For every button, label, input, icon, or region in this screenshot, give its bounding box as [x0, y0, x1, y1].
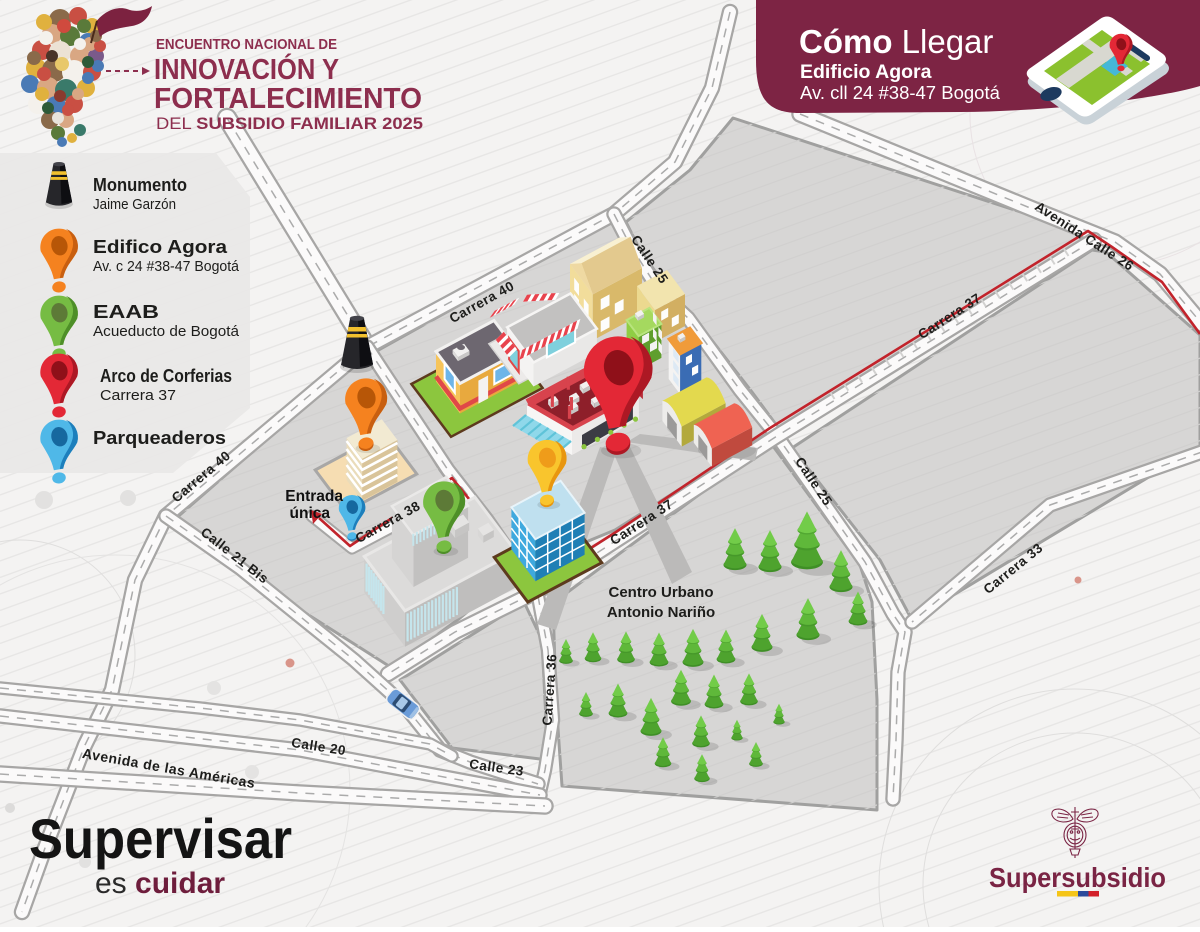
svg-text:Monumento: Monumento	[93, 175, 187, 195]
svg-text:Cómo Llegar: Cómo Llegar	[799, 23, 993, 60]
svg-text:Entrada: Entrada	[285, 488, 343, 505]
svg-text:Edificio Agora: Edificio Agora	[800, 61, 932, 83]
svg-text:INNOVACIÓN Y: INNOVACIÓN Y	[154, 52, 339, 86]
svg-text:FORTALECIMIENTO: FORTALECIMIENTO	[154, 83, 422, 115]
svg-text:Antonio Nariño: Antonio Nariño	[607, 604, 715, 621]
svg-text:Supervisar: Supervisar	[29, 807, 292, 870]
svg-text:Parqueaderos: Parqueaderos	[93, 428, 226, 448]
svg-text:es cuidar: es cuidar	[95, 867, 225, 900]
svg-text:Av. cll 24 #38-47 Bogotá: Av. cll 24 #38-47 Bogotá	[800, 82, 1001, 103]
svg-text:ENCUENTRO NACIONAL DE: ENCUENTRO NACIONAL DE	[156, 37, 337, 53]
svg-text:Jaime Garzón: Jaime Garzón	[93, 196, 176, 213]
svg-text:EAAB: EAAB	[93, 301, 159, 322]
svg-text:DEL SUBSIDIO FAMILIAR 2025: DEL SUBSIDIO FAMILIAR 2025	[156, 114, 423, 133]
svg-text:Acueducto de Bogotá: Acueducto de Bogotá	[93, 323, 240, 340]
svg-text:Supersubsidio: Supersubsidio	[989, 862, 1166, 893]
svg-text:Centro Urbano: Centro Urbano	[609, 584, 714, 601]
svg-text:Av. c 24 #38-47 Bogotá: Av. c 24 #38-47 Bogotá	[93, 259, 240, 275]
svg-text:Arco de Corferias: Arco de Corferias	[100, 366, 232, 386]
svg-text:Carrera 37: Carrera 37	[100, 387, 176, 404]
svg-text:única: única	[290, 505, 331, 522]
svg-text:Edifico Agora: Edifico Agora	[93, 237, 228, 257]
